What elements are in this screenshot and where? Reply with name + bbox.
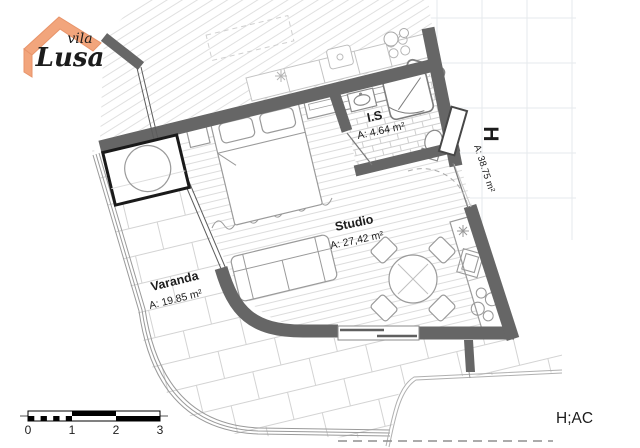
scale-tick-1: 1 [69, 423, 76, 437]
scale-tick-2: 2 [113, 423, 120, 437]
floor-plan-canvas: I.S A: 4.64 m² Studio A: 27,42 m² Varand… [0, 0, 640, 448]
sheet-code: H;AC [556, 410, 593, 427]
scale-tick-3: 3 [157, 423, 164, 437]
unit-letter-label: H [479, 126, 502, 141]
logo-text-lusa: Lusa [35, 43, 105, 73]
floor-plan-sheet: I.S A: 4.64 m² Studio A: 27,42 m² Varand… [0, 0, 640, 448]
sliding-door [338, 326, 419, 340]
scale-tick-0: 0 [25, 423, 32, 437]
